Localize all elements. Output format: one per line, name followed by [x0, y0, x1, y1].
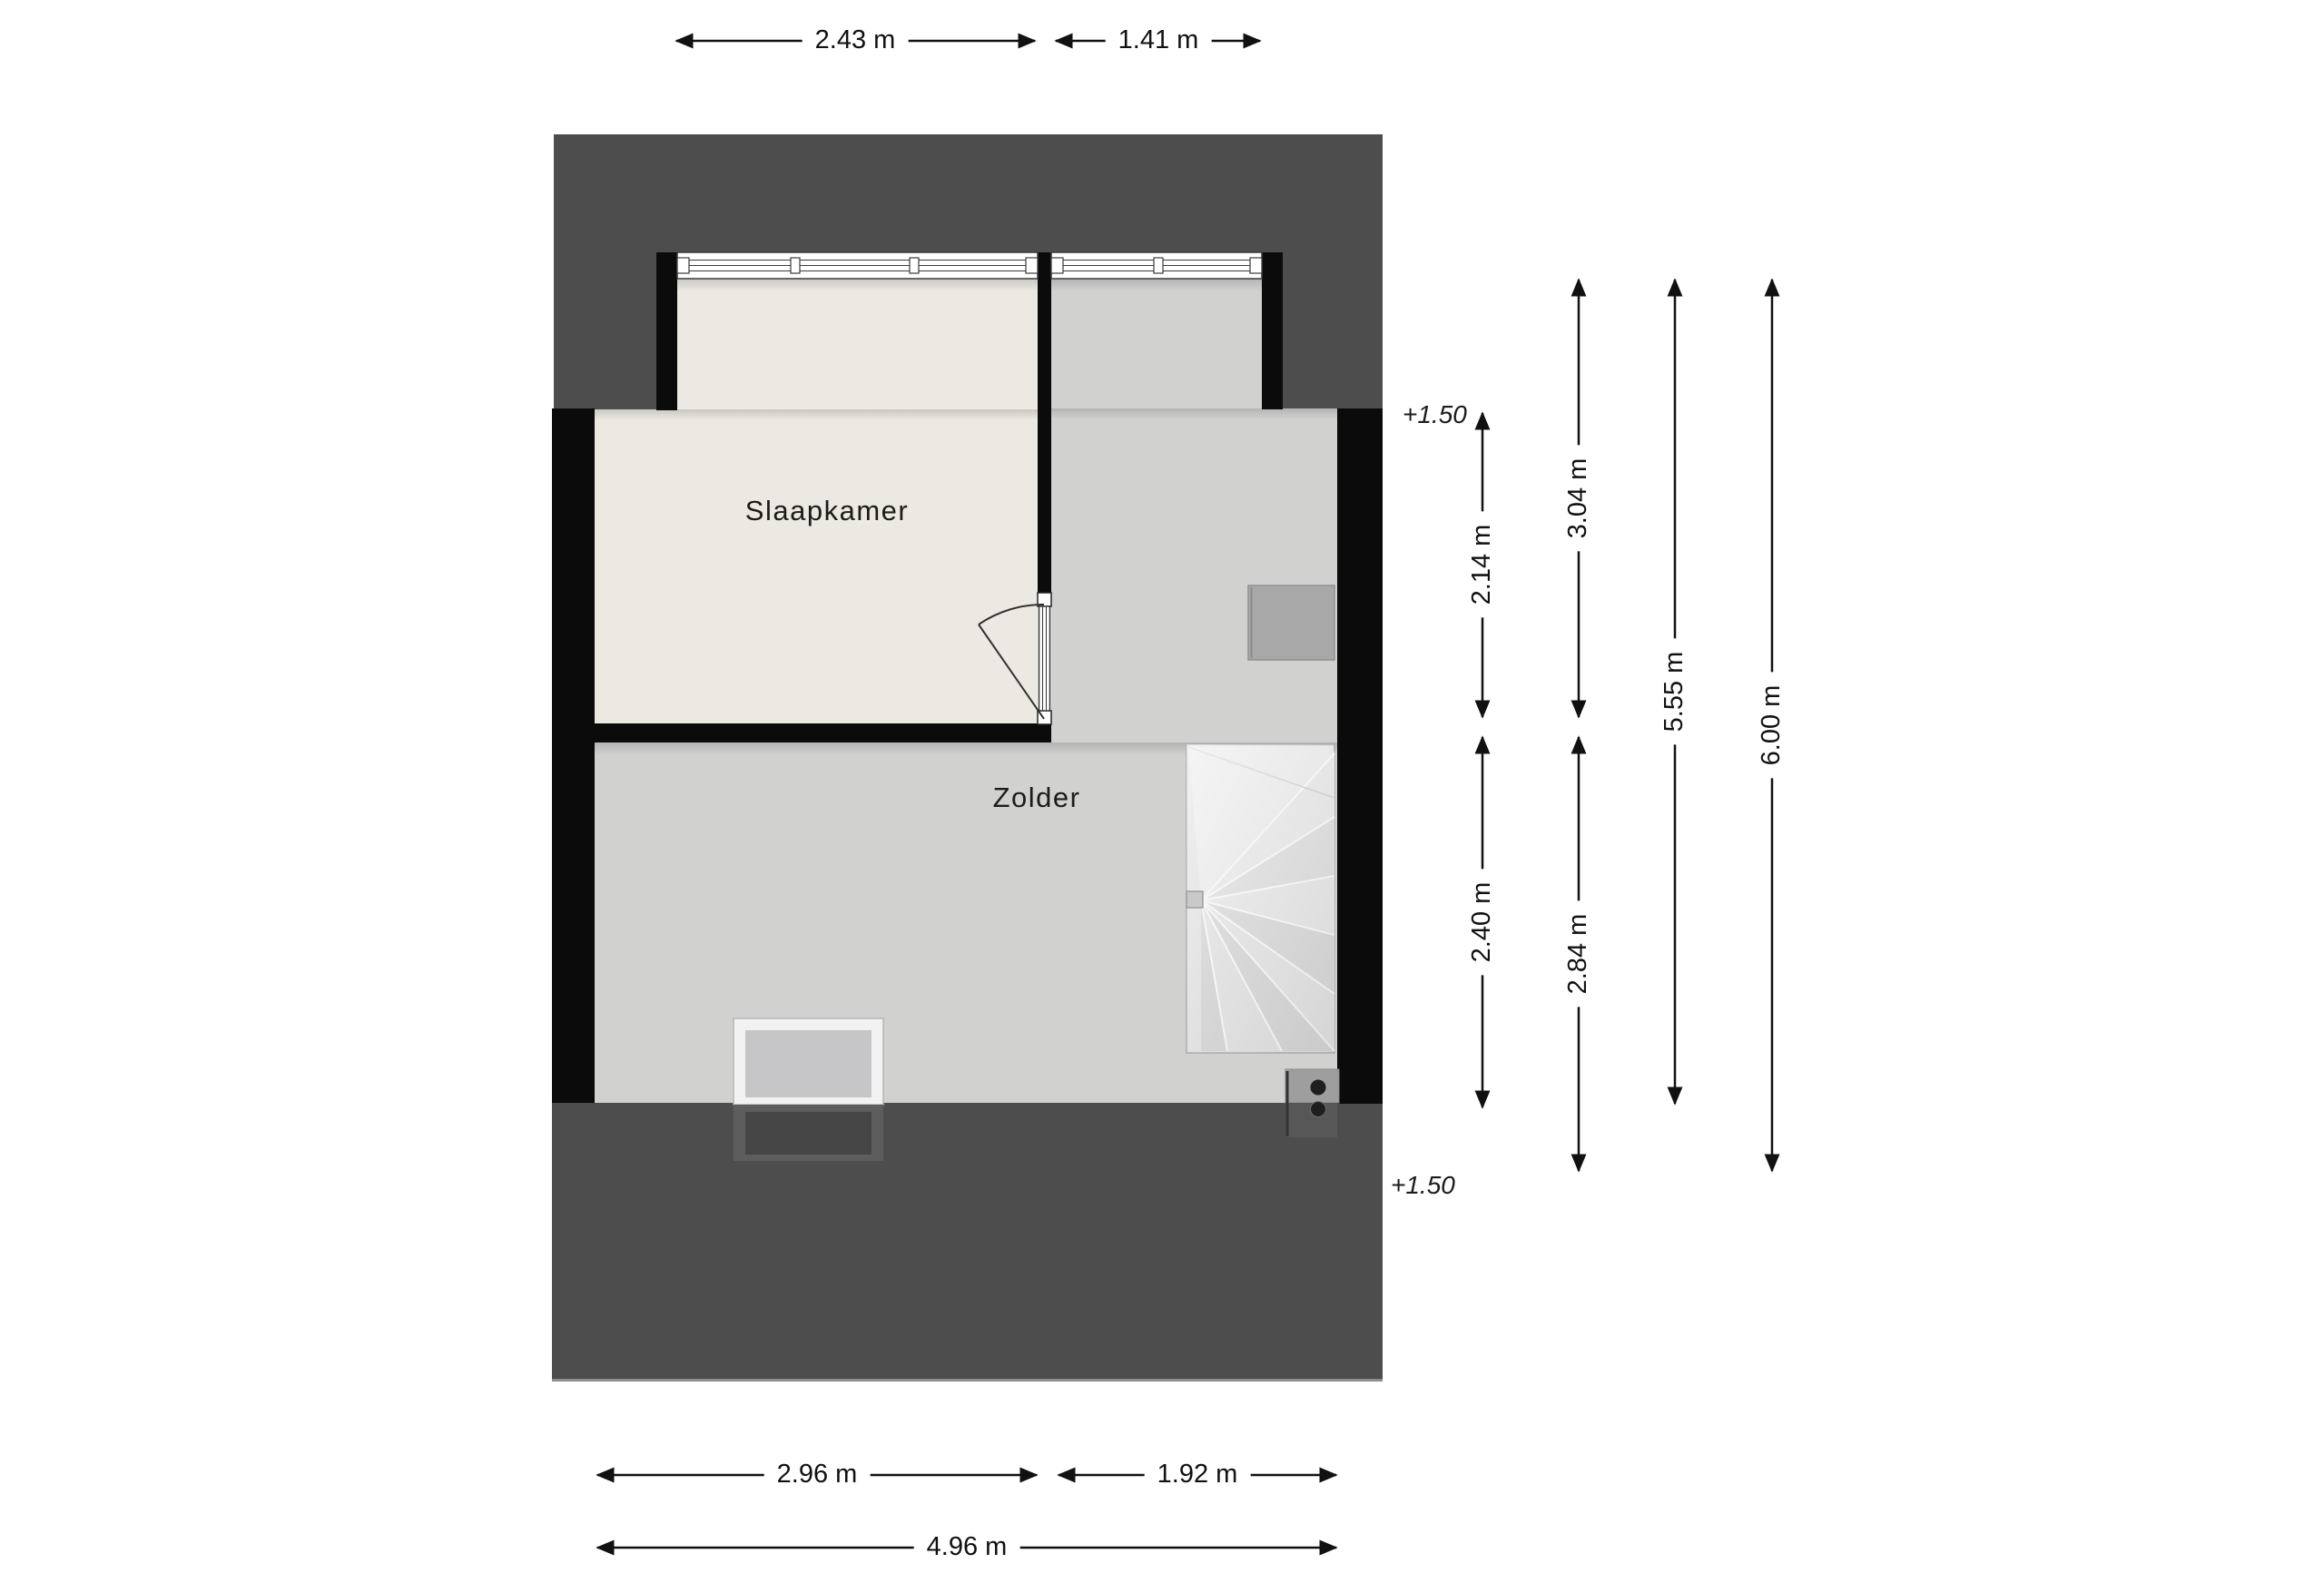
dim-label-bottom-496: 4.96 m	[914, 1531, 1020, 1564]
zolder-floor-mid	[1051, 408, 1337, 743]
skylight-lower-glass	[745, 1112, 871, 1155]
step-shadow-zolder	[1051, 408, 1337, 419]
dim-label-top-243: 2.43 m	[803, 25, 909, 57]
door-leaf	[1039, 606, 1050, 711]
windows	[677, 252, 1262, 279]
window-mullion	[791, 258, 800, 273]
room-label-slaapkamer: Slaapkamer	[745, 495, 909, 527]
slaapkamer-floor-upper	[677, 279, 1038, 411]
dim-label-bottom-296: 2.96 m	[764, 1459, 871, 1491]
roof-top-band	[554, 134, 1383, 255]
wall-slaapkamer-bottom	[595, 723, 1051, 742]
zolder-floor-upper	[1051, 279, 1262, 409]
slaapkamer-floor	[595, 409, 1038, 724]
floorplan-canvas: Slaapkamer Zolder 2.43 m 1.41 m 2.14 m 2…	[0, 0, 2324, 1593]
level-marker-bottom: +1.50	[1391, 1171, 1455, 1200]
window-endcap	[1051, 258, 1063, 273]
dim-label-right-304: 3.04 m	[1562, 446, 1595, 552]
cabinet	[1248, 585, 1334, 660]
window-endcap	[677, 258, 689, 273]
dim-label-right-600: 6.00 m	[1756, 673, 1788, 779]
dim-label-right-555: 5.55 m	[1659, 639, 1691, 745]
wall-lower-left	[552, 408, 595, 1103]
dim-label-right-240: 2.40 m	[1466, 870, 1499, 976]
roof-left-band	[554, 254, 656, 410]
skylight-glass	[745, 1030, 871, 1097]
wall-upper-right	[1262, 252, 1283, 409]
dim-label-bottom-192: 1.92 m	[1145, 1459, 1251, 1491]
window-mullion	[1154, 258, 1163, 273]
level-marker-top: +1.50	[1403, 400, 1467, 429]
window-endcap	[1250, 258, 1262, 273]
floorplan-drawing	[0, 0, 2324, 1593]
chimney	[1285, 1069, 1339, 1137]
staircase	[1187, 744, 1334, 1053]
dim-label-top-141: 1.41 m	[1106, 25, 1212, 57]
window-mullion	[910, 258, 919, 273]
skylight	[734, 1018, 883, 1161]
roof-right-band	[1283, 254, 1383, 409]
stair-newel	[1187, 891, 1203, 908]
room-label-zolder: Zolder	[993, 782, 1081, 814]
step-shadow-slaapkamer	[595, 409, 1038, 420]
window-zolder	[1051, 252, 1262, 279]
window-shadow-left	[677, 279, 1038, 291]
window-endcap	[1026, 258, 1038, 273]
wall-lower-right	[1337, 408, 1383, 1104]
wall-upper-left	[656, 252, 677, 410]
dim-label-right-284: 2.84 m	[1562, 901, 1595, 1008]
roof-bottom-band	[552, 1103, 1383, 1382]
window-slaapkamer	[677, 252, 1038, 279]
window-shadow-right	[1051, 279, 1262, 291]
wall-divider	[1038, 252, 1051, 595]
dim-label-right-214: 2.14 m	[1466, 512, 1499, 618]
